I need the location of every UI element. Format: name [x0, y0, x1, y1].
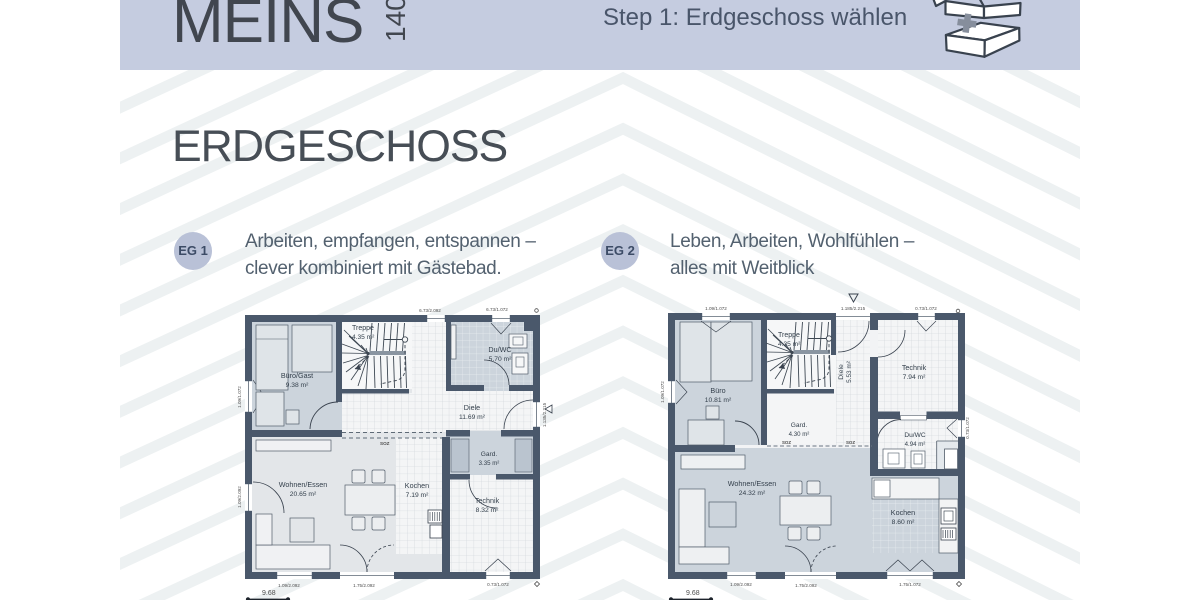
- svg-text:8.32 m²: 8.32 m²: [476, 507, 499, 514]
- svg-text:1.75/2.092: 1.75/2.092: [795, 583, 817, 588]
- svg-text:Treppe: Treppe: [778, 332, 800, 339]
- svg-text:4.30 m²: 4.30 m²: [789, 431, 810, 438]
- svg-text:Technik: Technik: [475, 496, 500, 505]
- svg-text:SOZ: SOZ: [846, 440, 855, 445]
- svg-text:0.73/1.072: 0.73/1.072: [965, 417, 970, 439]
- svg-text:10.81 m²: 10.81 m²: [705, 397, 732, 404]
- svg-text:11.69 m²: 11.69 m²: [459, 414, 486, 421]
- svg-text:SOZ: SOZ: [782, 440, 791, 445]
- svg-text:6.73/2.092: 6.73/2.092: [419, 308, 441, 313]
- svg-text:1.09/2.092: 1.09/2.092: [730, 582, 752, 587]
- svg-text:0.73/1.072: 0.73/1.072: [487, 582, 509, 587]
- svg-text:0.73/1.072: 0.73/1.072: [915, 306, 937, 311]
- svg-text:5.53 m²: 5.53 m²: [846, 361, 853, 383]
- svg-text:9.68: 9.68: [686, 590, 700, 597]
- svg-text:24.32 m²: 24.32 m²: [739, 490, 766, 497]
- svg-text:7.94 m²: 7.94 m²: [903, 374, 926, 381]
- svg-text:4.35 m²: 4.35 m²: [352, 334, 375, 341]
- svg-text:3.35 m²: 3.35 m²: [479, 460, 500, 467]
- svg-text:SOZ: SOZ: [380, 441, 390, 446]
- svg-text:1.135/2.215: 1.135/2.215: [542, 402, 547, 427]
- svg-text:Kochen: Kochen: [405, 481, 429, 490]
- svg-text:Diele: Diele: [838, 364, 845, 380]
- svg-text:5.70 m²: 5.70 m²: [489, 356, 512, 363]
- svg-text:Du/WC: Du/WC: [488, 345, 511, 354]
- svg-text:Gard.: Gard.: [791, 422, 808, 429]
- svg-text:1.09/2.092: 1.09/2.092: [237, 486, 242, 508]
- svg-text:9.68: 9.68: [262, 590, 276, 597]
- svg-text:Büro: Büro: [710, 386, 725, 395]
- svg-text:6.73/1.072: 6.73/1.072: [486, 307, 508, 312]
- svg-text:Technik: Technik: [902, 363, 927, 372]
- svg-text:1.09/1.072: 1.09/1.072: [237, 386, 242, 408]
- svg-text:Gard.: Gard.: [481, 451, 498, 458]
- svg-text:Du/WC: Du/WC: [904, 432, 925, 439]
- svg-text:20.65 m²: 20.65 m²: [290, 491, 317, 498]
- svg-text:4.94 m²: 4.94 m²: [905, 441, 926, 448]
- svg-text:Treppe: Treppe: [352, 325, 374, 332]
- svg-text:4.35 m²: 4.35 m²: [778, 341, 801, 348]
- svg-text:Diele: Diele: [464, 403, 480, 412]
- svg-text:1.75/1.072: 1.75/1.072: [899, 582, 921, 587]
- svg-text:Büro/Gast: Büro/Gast: [281, 371, 313, 380]
- svg-text:1.75/2.092: 1.75/2.092: [353, 583, 375, 588]
- svg-text:9.38 m²: 9.38 m²: [286, 382, 309, 389]
- svg-text:Wohnen/Essen: Wohnen/Essen: [279, 480, 328, 489]
- svg-text:Wohnen/Essen: Wohnen/Essen: [728, 479, 777, 488]
- svg-text:7.19 m²: 7.19 m²: [406, 492, 429, 499]
- svg-text:1.09/2.092: 1.09/2.092: [278, 583, 300, 588]
- svg-text:1.09/1.072: 1.09/1.072: [660, 381, 665, 403]
- svg-text:1.09/1.072: 1.09/1.072: [705, 306, 727, 311]
- svg-text:Kochen: Kochen: [891, 508, 915, 517]
- svg-text:8.60 m²: 8.60 m²: [892, 519, 915, 526]
- svg-text:1.185/2.215: 1.185/2.215: [841, 306, 866, 311]
